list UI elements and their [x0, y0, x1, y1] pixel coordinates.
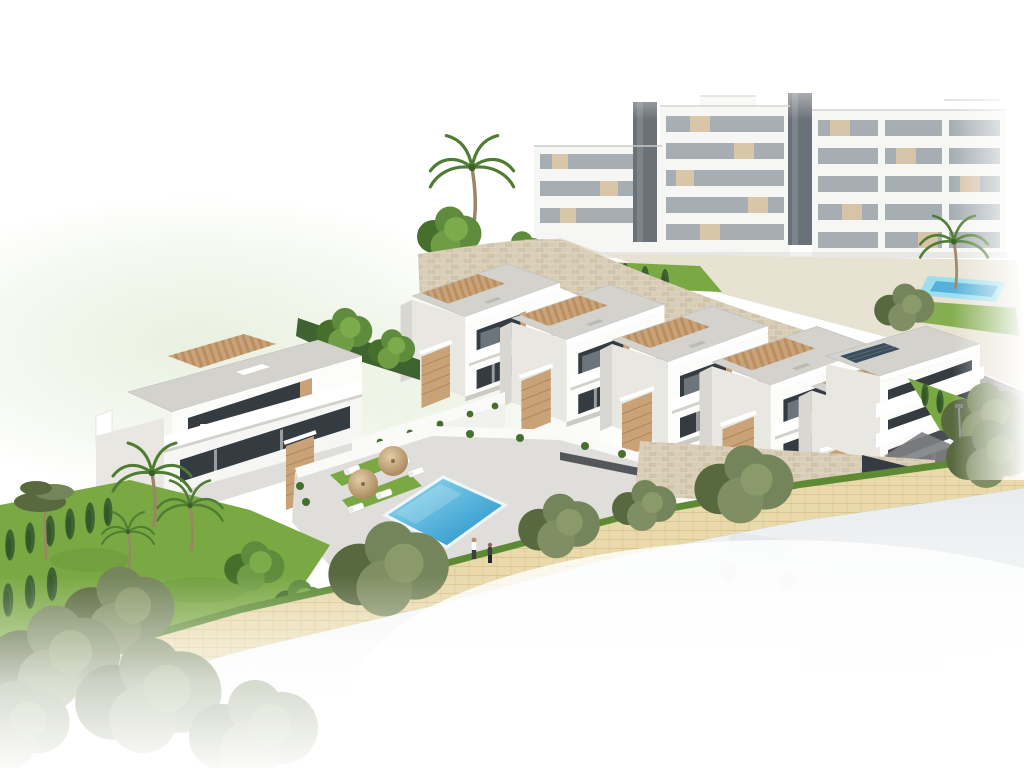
top-fade: [0, 60, 1024, 120]
right-fade: [952, 60, 1024, 480]
architectural-render: [0, 0, 1024, 768]
render-canvas: [0, 0, 1024, 768]
pedestrian: [488, 543, 492, 563]
pedestrian: [472, 538, 477, 559]
